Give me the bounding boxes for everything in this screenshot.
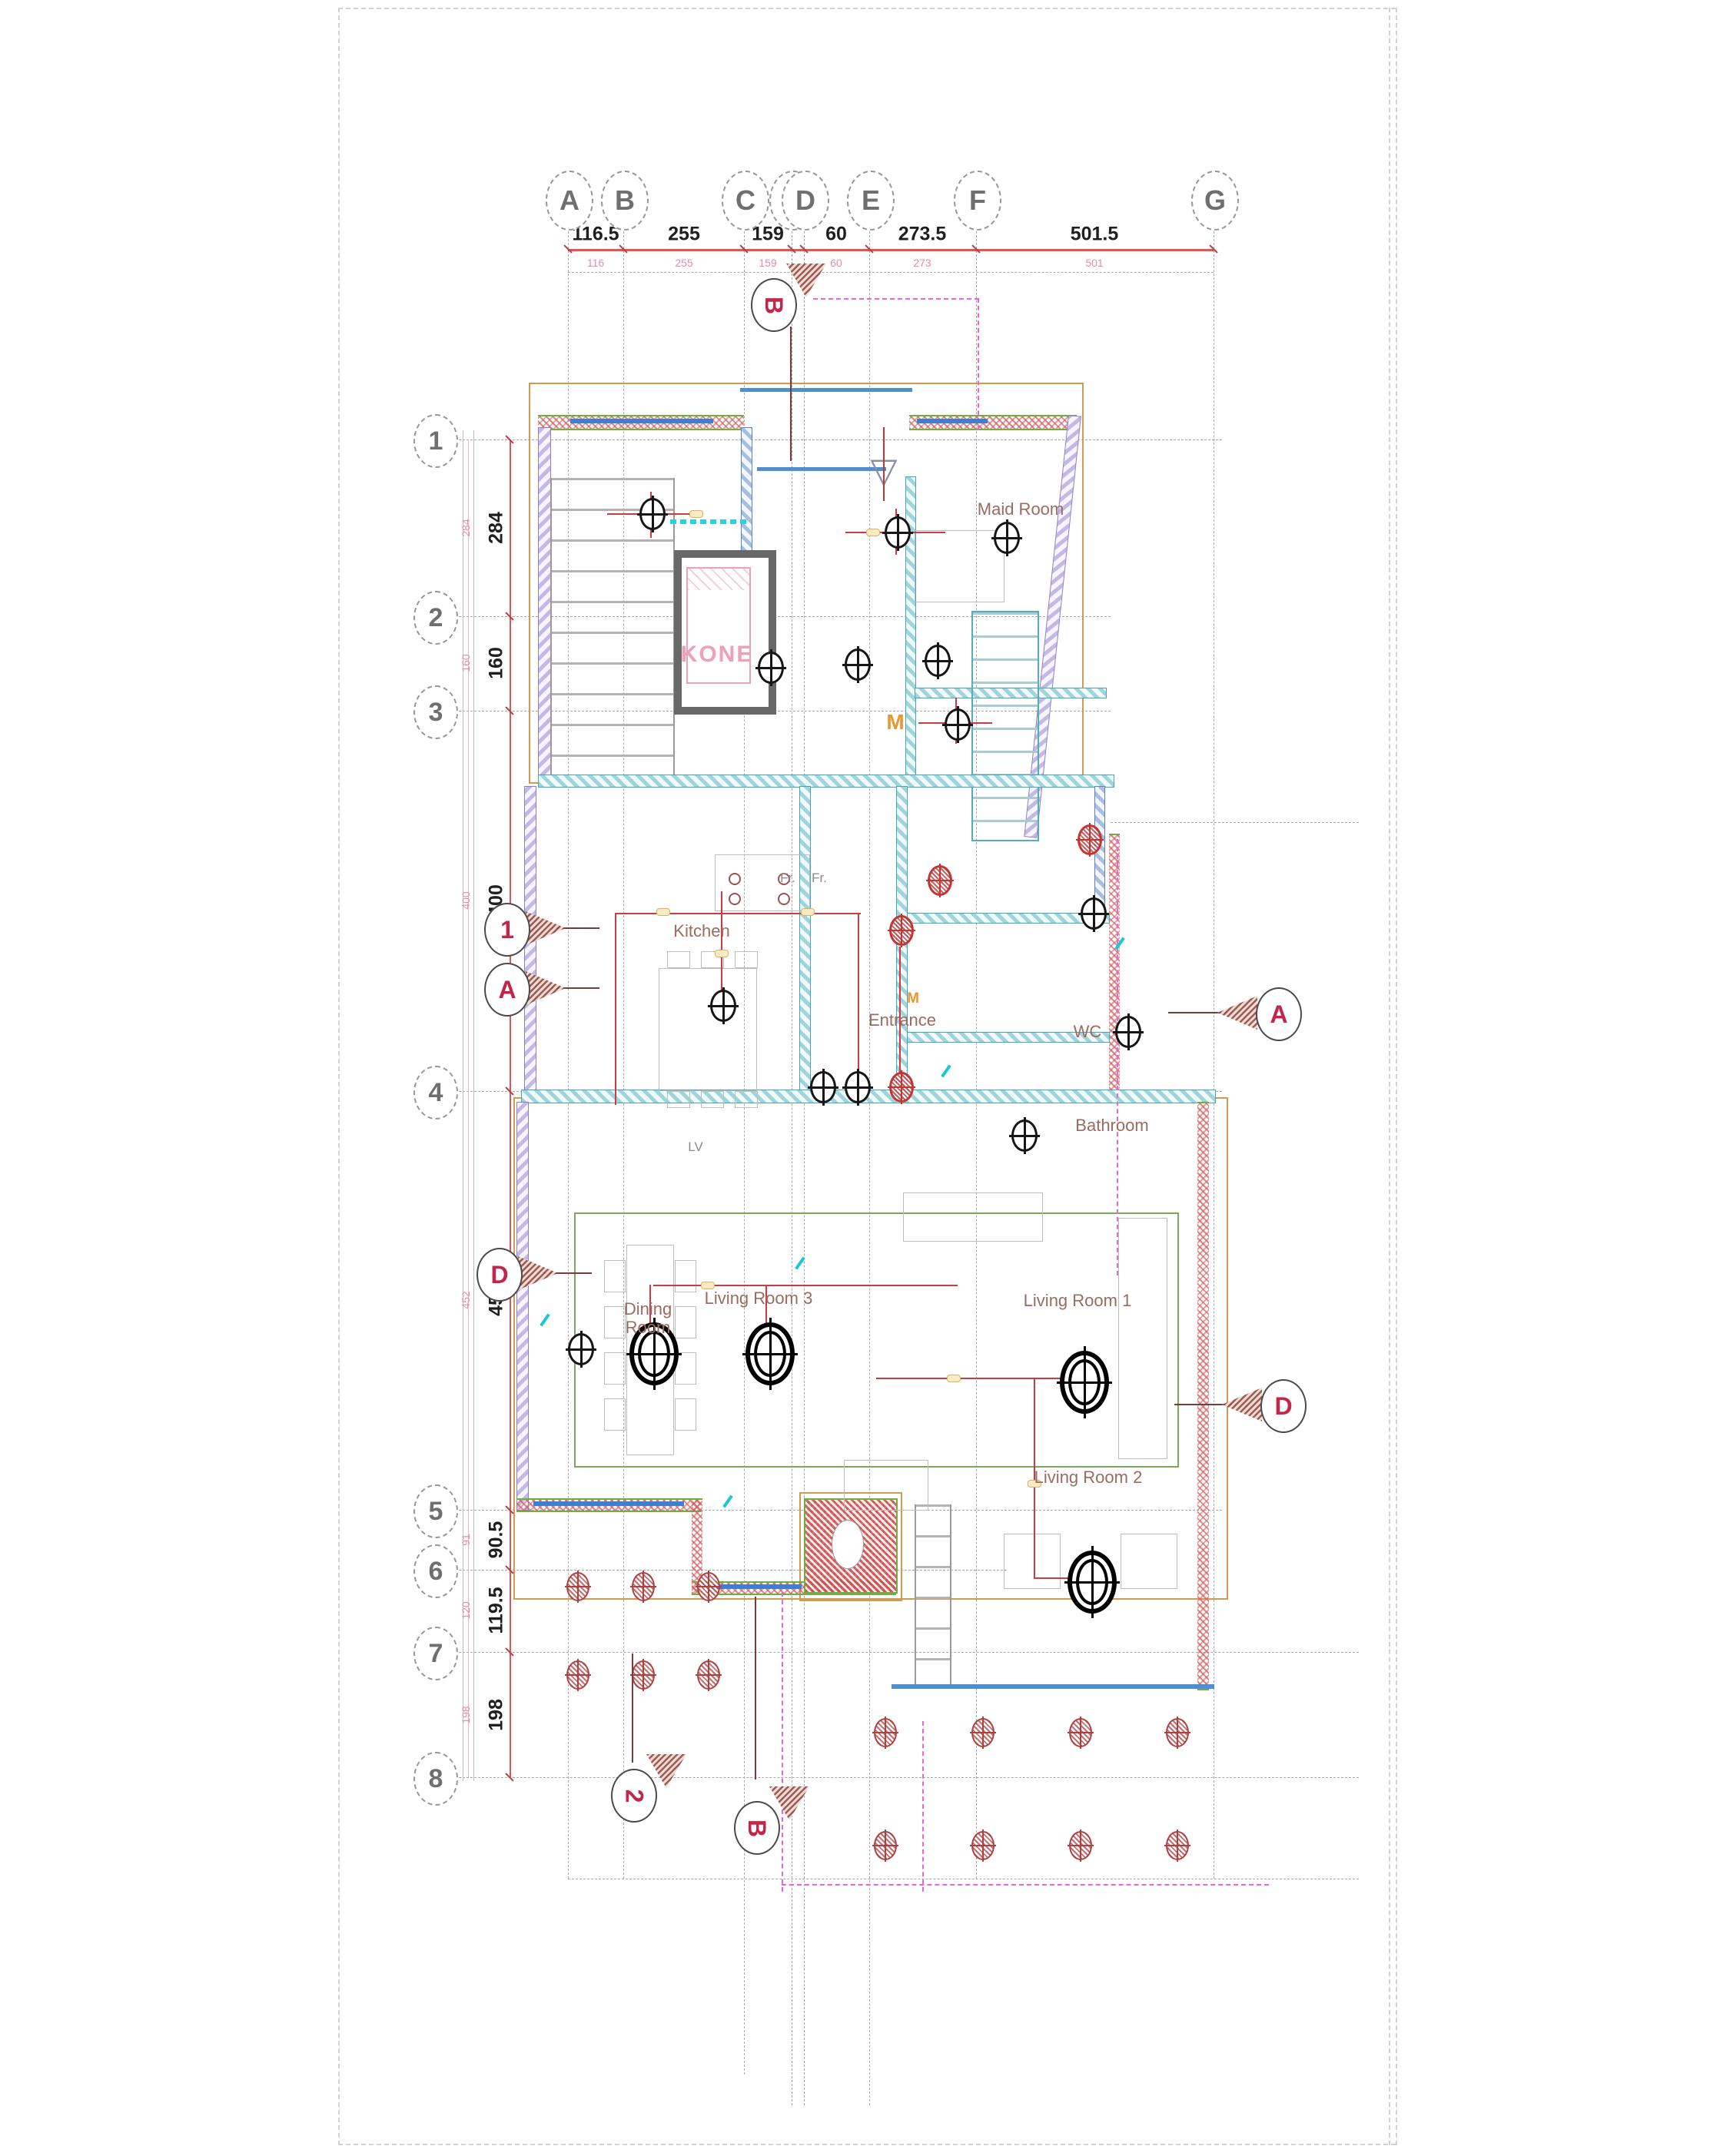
furniture-outline: [1004, 1534, 1061, 1589]
grid-row-bubble-8: 8: [413, 1752, 458, 1806]
top-dimension-text-secondary: 159: [759, 257, 776, 269]
site-column-marker-icon: [874, 1718, 897, 1747]
window-segment: [917, 419, 988, 423]
left-dimension-text-secondary: 452: [460, 1291, 472, 1309]
canopy-line: [740, 388, 912, 392]
grid-column-line-G: [1214, 227, 1214, 1879]
socket-symbol: [866, 529, 880, 536]
room-label: Living Room 3: [705, 1289, 813, 1309]
left-dimension-line-secondary: [468, 439, 469, 1777]
room-label: M: [907, 990, 919, 1007]
top-dimension-text: 255: [668, 224, 700, 246]
wiring-line: [615, 913, 616, 1105]
site-column-marker-icon: [632, 1660, 655, 1690]
socket-symbol: [801, 908, 815, 916]
furniture-outline: [915, 530, 1004, 602]
left-dimension-text-secondary: 160: [460, 654, 472, 672]
window-segment: [570, 419, 713, 423]
furniture-outline: [667, 1091, 690, 1108]
site-column-marker-icon: [1166, 1718, 1189, 1747]
page-border-left: [338, 8, 340, 2145]
property-line: [1117, 839, 1118, 1275]
room-label: LV: [688, 1139, 703, 1155]
ceiling-light-icon: [885, 516, 911, 549]
wiring-line: [876, 1378, 1081, 1379]
ceiling-light-icon: [1011, 1119, 1038, 1152]
grid-row-bubble-3: 3: [413, 685, 458, 739]
left-dimension-text: 119.5: [486, 1587, 508, 1634]
site-column-marker-icon: [697, 1660, 720, 1690]
grid-column-bubble-C: C: [722, 171, 769, 231]
socket-symbol: [715, 950, 729, 957]
stair-note-text: [670, 519, 750, 524]
grid-row-bubble-6: 6: [413, 1544, 458, 1598]
ceiling-light-icon: [810, 1071, 836, 1103]
left-dimension-text: 284: [486, 512, 508, 544]
room-label: Living Room 1: [1024, 1291, 1132, 1311]
room-label: Dining Room: [615, 1300, 681, 1337]
section-marker-line: [755, 1597, 756, 1780]
section-marker-1: 1: [484, 903, 530, 957]
furniture-outline: [735, 951, 758, 968]
grid-column-bubble-B: B: [601, 171, 649, 231]
furniture-outline: [675, 1260, 696, 1292]
ceiling-light-icon: [758, 652, 784, 684]
site-column-marker-icon: [632, 1572, 655, 1601]
grid-row-bubble-1: 1: [413, 414, 458, 468]
wall-segment: [1197, 1102, 1209, 1690]
site-column-marker-icon: [566, 1660, 589, 1690]
left-dimension-text-secondary: 120: [460, 1601, 472, 1619]
site-column-marker-icon: [1069, 1718, 1092, 1747]
section-marker-A: A: [484, 963, 530, 1017]
section-marker-line: [632, 1653, 633, 1763]
wall-segment: [971, 611, 1039, 841]
room-label: Fr.: [780, 871, 795, 886]
site-column-marker-icon: [1166, 1831, 1189, 1860]
ceiling-light-icon: [845, 1071, 871, 1103]
property-line: [922, 1721, 924, 1892]
wall-segment: [538, 427, 551, 782]
grid-extra-v-line: [463, 430, 463, 1781]
room-label: Kitchen: [673, 921, 729, 941]
furniture-outline: [735, 1091, 758, 1108]
room-label: Entrance: [868, 1010, 936, 1030]
switch-mark: [941, 1064, 951, 1077]
section-marker-triangle: [526, 971, 566, 1005]
furniture-outline: [701, 1091, 724, 1108]
site-column-marker-icon: [697, 1572, 720, 1601]
room-label: Living Room 2: [1034, 1468, 1143, 1488]
ceiling-light-red-icon: [889, 915, 914, 946]
left-dimension-text: 160: [486, 647, 508, 679]
canopy-line: [757, 467, 886, 471]
left-dimension-text: 90.5: [486, 1521, 508, 1559]
entrance-axis-line: [883, 427, 885, 501]
ceiling-light-icon: [639, 498, 666, 530]
furniture-outline: [1121, 1534, 1177, 1589]
top-dimension-text-secondary: 273: [913, 257, 931, 269]
room-label: Bathroom: [1075, 1116, 1148, 1136]
top-dimension-text-secondary: 60: [830, 257, 842, 269]
ceiling-light-red-icon: [889, 1072, 914, 1103]
ceiling-light-icon: [945, 708, 971, 741]
top-dimension-line: [568, 249, 1214, 251]
top-dimension-text: 273.5: [898, 224, 947, 246]
left-dimension-text-secondary: 198: [460, 1706, 472, 1723]
grid-row-bubble-4: 4: [413, 1066, 458, 1119]
site-column-marker-icon: [874, 1831, 897, 1860]
grid-column-bubble-G: G: [1191, 171, 1239, 231]
wall-segment: [799, 786, 811, 1095]
canopy-line: [892, 1684, 1214, 1689]
furniture-outline: [604, 1260, 626, 1292]
left-dimension-line: [510, 439, 511, 1777]
page-border-bottom: [338, 2144, 1396, 2145]
grid-extra-v-line: [473, 430, 474, 1781]
section-marker-D: D: [1260, 1379, 1307, 1433]
socket-symbol: [689, 510, 703, 518]
grid-column-bubble-E: E: [847, 171, 895, 231]
section-marker-A: A: [1256, 987, 1302, 1041]
grid-row-bubble-7: 7: [413, 1627, 458, 1680]
window-segment: [533, 1501, 684, 1506]
ceiling-light-red-icon: [928, 865, 952, 896]
stove-burner: [729, 873, 741, 885]
grid-column-bubble-F: F: [954, 171, 1001, 231]
left-dimension-text-secondary: 91: [460, 1534, 472, 1546]
room-label: KONE: [681, 642, 754, 668]
grid-extra-h-line: [1111, 822, 1359, 823]
site-column-marker-icon: [1069, 1831, 1092, 1860]
section-marker-2: 2: [611, 1769, 657, 1823]
grid-column-bubble-A: A: [546, 171, 593, 231]
grid-row-line-8: [455, 1777, 1359, 1778]
room-label: Maid Room: [978, 499, 1064, 519]
ceiling-light-icon: [925, 645, 951, 677]
ceiling-light-icon: [994, 522, 1020, 554]
grid-extra-h-line: [568, 272, 1214, 273]
furniture-outline: [844, 1460, 928, 1511]
furniture-outline: [675, 1398, 696, 1431]
site-column-marker-icon: [566, 1572, 589, 1601]
furniture-outline: [715, 854, 810, 911]
wiring-line: [615, 913, 861, 914]
room-label: Fr.: [812, 871, 827, 886]
grid-extra-h-line: [568, 1879, 1359, 1879]
socket-symbol: [947, 1375, 961, 1382]
chandelier-icon: [1060, 1351, 1109, 1414]
floor-plan-sheet: ABCDDEFG12345678 KitchenEntranceMaid Roo…: [0, 0, 1730, 2156]
left-dimension-text-secondary: 400: [460, 891, 472, 909]
top-dimension-text: 501.5: [1071, 224, 1119, 246]
top-dimension-text-secondary: 501: [1085, 257, 1103, 269]
planter-oval: [832, 1520, 864, 1569]
section-marker-B: B: [734, 1801, 780, 1855]
furniture-outline: [903, 1192, 1043, 1242]
left-dimension-text: 198: [486, 1699, 508, 1731]
window-segment: [711, 1584, 802, 1589]
page-border-right: [1389, 8, 1390, 2145]
furniture-outline: [1118, 1218, 1167, 1459]
ceiling-light-icon: [1081, 897, 1107, 930]
section-marker-line: [790, 327, 792, 461]
property-line: [978, 298, 979, 430]
property-line: [782, 1884, 1269, 1886]
furniture-outline: [604, 1398, 626, 1431]
socket-symbol: [656, 908, 670, 916]
ceiling-light-red-icon: [1078, 824, 1102, 855]
wall-segment: [915, 1504, 951, 1687]
stove-burner: [729, 893, 741, 905]
furniture-outline: [659, 968, 757, 1091]
room-label: WC: [1074, 1022, 1102, 1042]
ceiling-light-icon: [845, 648, 871, 681]
top-dimension-text-secondary: 116: [587, 257, 604, 269]
wiring-line: [653, 1285, 958, 1286]
wall-segment: [516, 1102, 529, 1511]
grid-row-bubble-2: 2: [413, 591, 458, 645]
stove-burner: [778, 893, 790, 905]
site-column-marker-icon: [971, 1718, 995, 1747]
property-line: [813, 298, 979, 300]
section-marker-D: D: [476, 1248, 523, 1302]
property-line: [782, 1592, 783, 1892]
ceiling-light-icon: [568, 1333, 594, 1365]
left-dimension-text-secondary: 284: [460, 519, 472, 536]
room-label: M: [886, 710, 904, 735]
page-border-top: [338, 8, 1396, 9]
page-border-right-outer: [1396, 8, 1397, 2145]
section-marker-B: B: [751, 278, 797, 332]
grid-row-bubble-5: 5: [413, 1484, 458, 1538]
furniture-outline: [604, 1352, 626, 1385]
top-dimension-text-secondary: 255: [675, 257, 692, 269]
ceiling-light-icon: [1115, 1016, 1141, 1048]
site-column-marker-icon: [971, 1831, 995, 1860]
section-marker-triangle: [526, 911, 566, 945]
chandelier-icon: [745, 1322, 795, 1385]
wall-segment: [538, 775, 1114, 788]
ceiling-light-icon: [710, 990, 736, 1022]
grid-row-line-7: [455, 1652, 1359, 1653]
section-marker-triangle: [1217, 996, 1257, 1030]
chandelier-icon: [1068, 1551, 1117, 1614]
grid-column-bubble-D: D: [782, 171, 829, 231]
top-dimension-text: 60: [825, 224, 847, 246]
furniture-outline: [667, 951, 690, 968]
